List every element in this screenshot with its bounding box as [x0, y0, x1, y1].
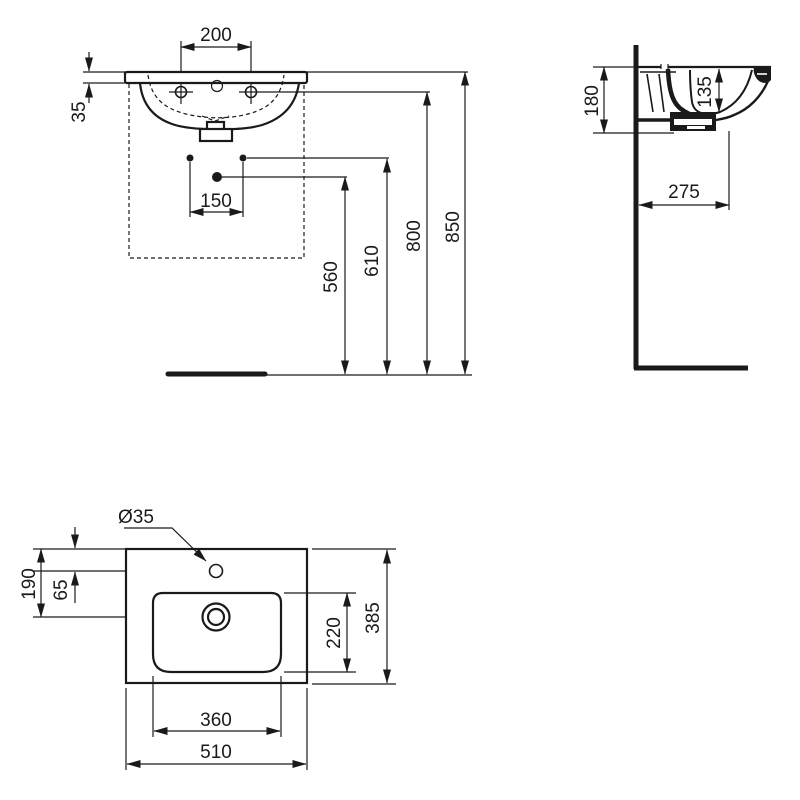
fixing-point-right	[240, 155, 247, 162]
dim-bowl-depth-plan-label: 220	[324, 617, 345, 649]
dim-tap-hole-spacing: 200	[181, 25, 251, 47]
dim-bowl-width: 360	[153, 676, 281, 737]
dim-overall-depth-plan: 385	[312, 549, 396, 684]
front-rim-section	[754, 67, 771, 83]
dim-fixing-hole-spacing: 150	[190, 191, 243, 212]
dim-side-overall-depth-label: 180	[582, 85, 603, 117]
waste-outlet-point	[212, 172, 222, 182]
dim-rim-height: 850	[443, 72, 465, 374]
furniture-unit-dashed-outline	[129, 84, 304, 258]
dim-waste-outlet-height: 560	[321, 177, 345, 374]
technical-drawing: 200 35 150 560 610 800 85	[0, 0, 800, 800]
dim-waste-from-wall: 275	[639, 131, 729, 210]
dim-fixing-holes-height-label: 610	[362, 245, 383, 277]
dim-tap-hole-from-back-label: 65	[51, 579, 72, 600]
dim-fixing-hole-spacing-label: 150	[200, 191, 232, 212]
dim-rim-thickness-label: 35	[69, 101, 90, 122]
dim-side-overall-depth: 180	[582, 67, 674, 133]
dim-fixing-holes-height: 610	[362, 159, 387, 374]
dim-waste-outlet-height-label: 560	[321, 261, 342, 293]
washbasin-technical-drawing-page: 200 35 150 560 610 800 85	[0, 0, 800, 800]
dim-tap-hole-from-back: 65	[51, 527, 75, 603]
tap-hole-section-gap	[661, 63, 668, 69]
dim-tap-holes-height-label: 800	[404, 220, 425, 252]
dim-bowl-depth-side-label: 135	[695, 76, 716, 108]
side-view: 180 135 275	[582, 45, 771, 369]
dim-tap-hole-diameter-label: Ø35	[118, 507, 154, 528]
fixing-point-left	[187, 155, 194, 162]
dim-waste-from-back: 190	[19, 549, 41, 617]
front-view: 200 35 150 560 610 800 85	[69, 25, 472, 375]
plan-view: Ø35 190 65 220 385	[19, 507, 396, 770]
dim-bowl-width-label: 360	[200, 710, 232, 731]
dim-tap-hole-spacing-label: 200	[200, 25, 232, 46]
basin-rim-front	[125, 72, 307, 83]
dim-tap-holes-height: 800	[404, 92, 427, 374]
dim-rim-thickness: 35	[69, 52, 90, 123]
waste-fitting-lower	[200, 129, 232, 141]
dim-waste-from-back-label: 190	[19, 568, 40, 600]
dim-bowl-depth-side: 135	[695, 69, 719, 112]
dim-rim-height-label: 850	[443, 211, 464, 243]
dim-waste-from-wall-label: 275	[668, 182, 700, 203]
dim-overall-depth-plan-label: 385	[363, 602, 384, 634]
dim-overall-width-label: 510	[200, 742, 232, 763]
